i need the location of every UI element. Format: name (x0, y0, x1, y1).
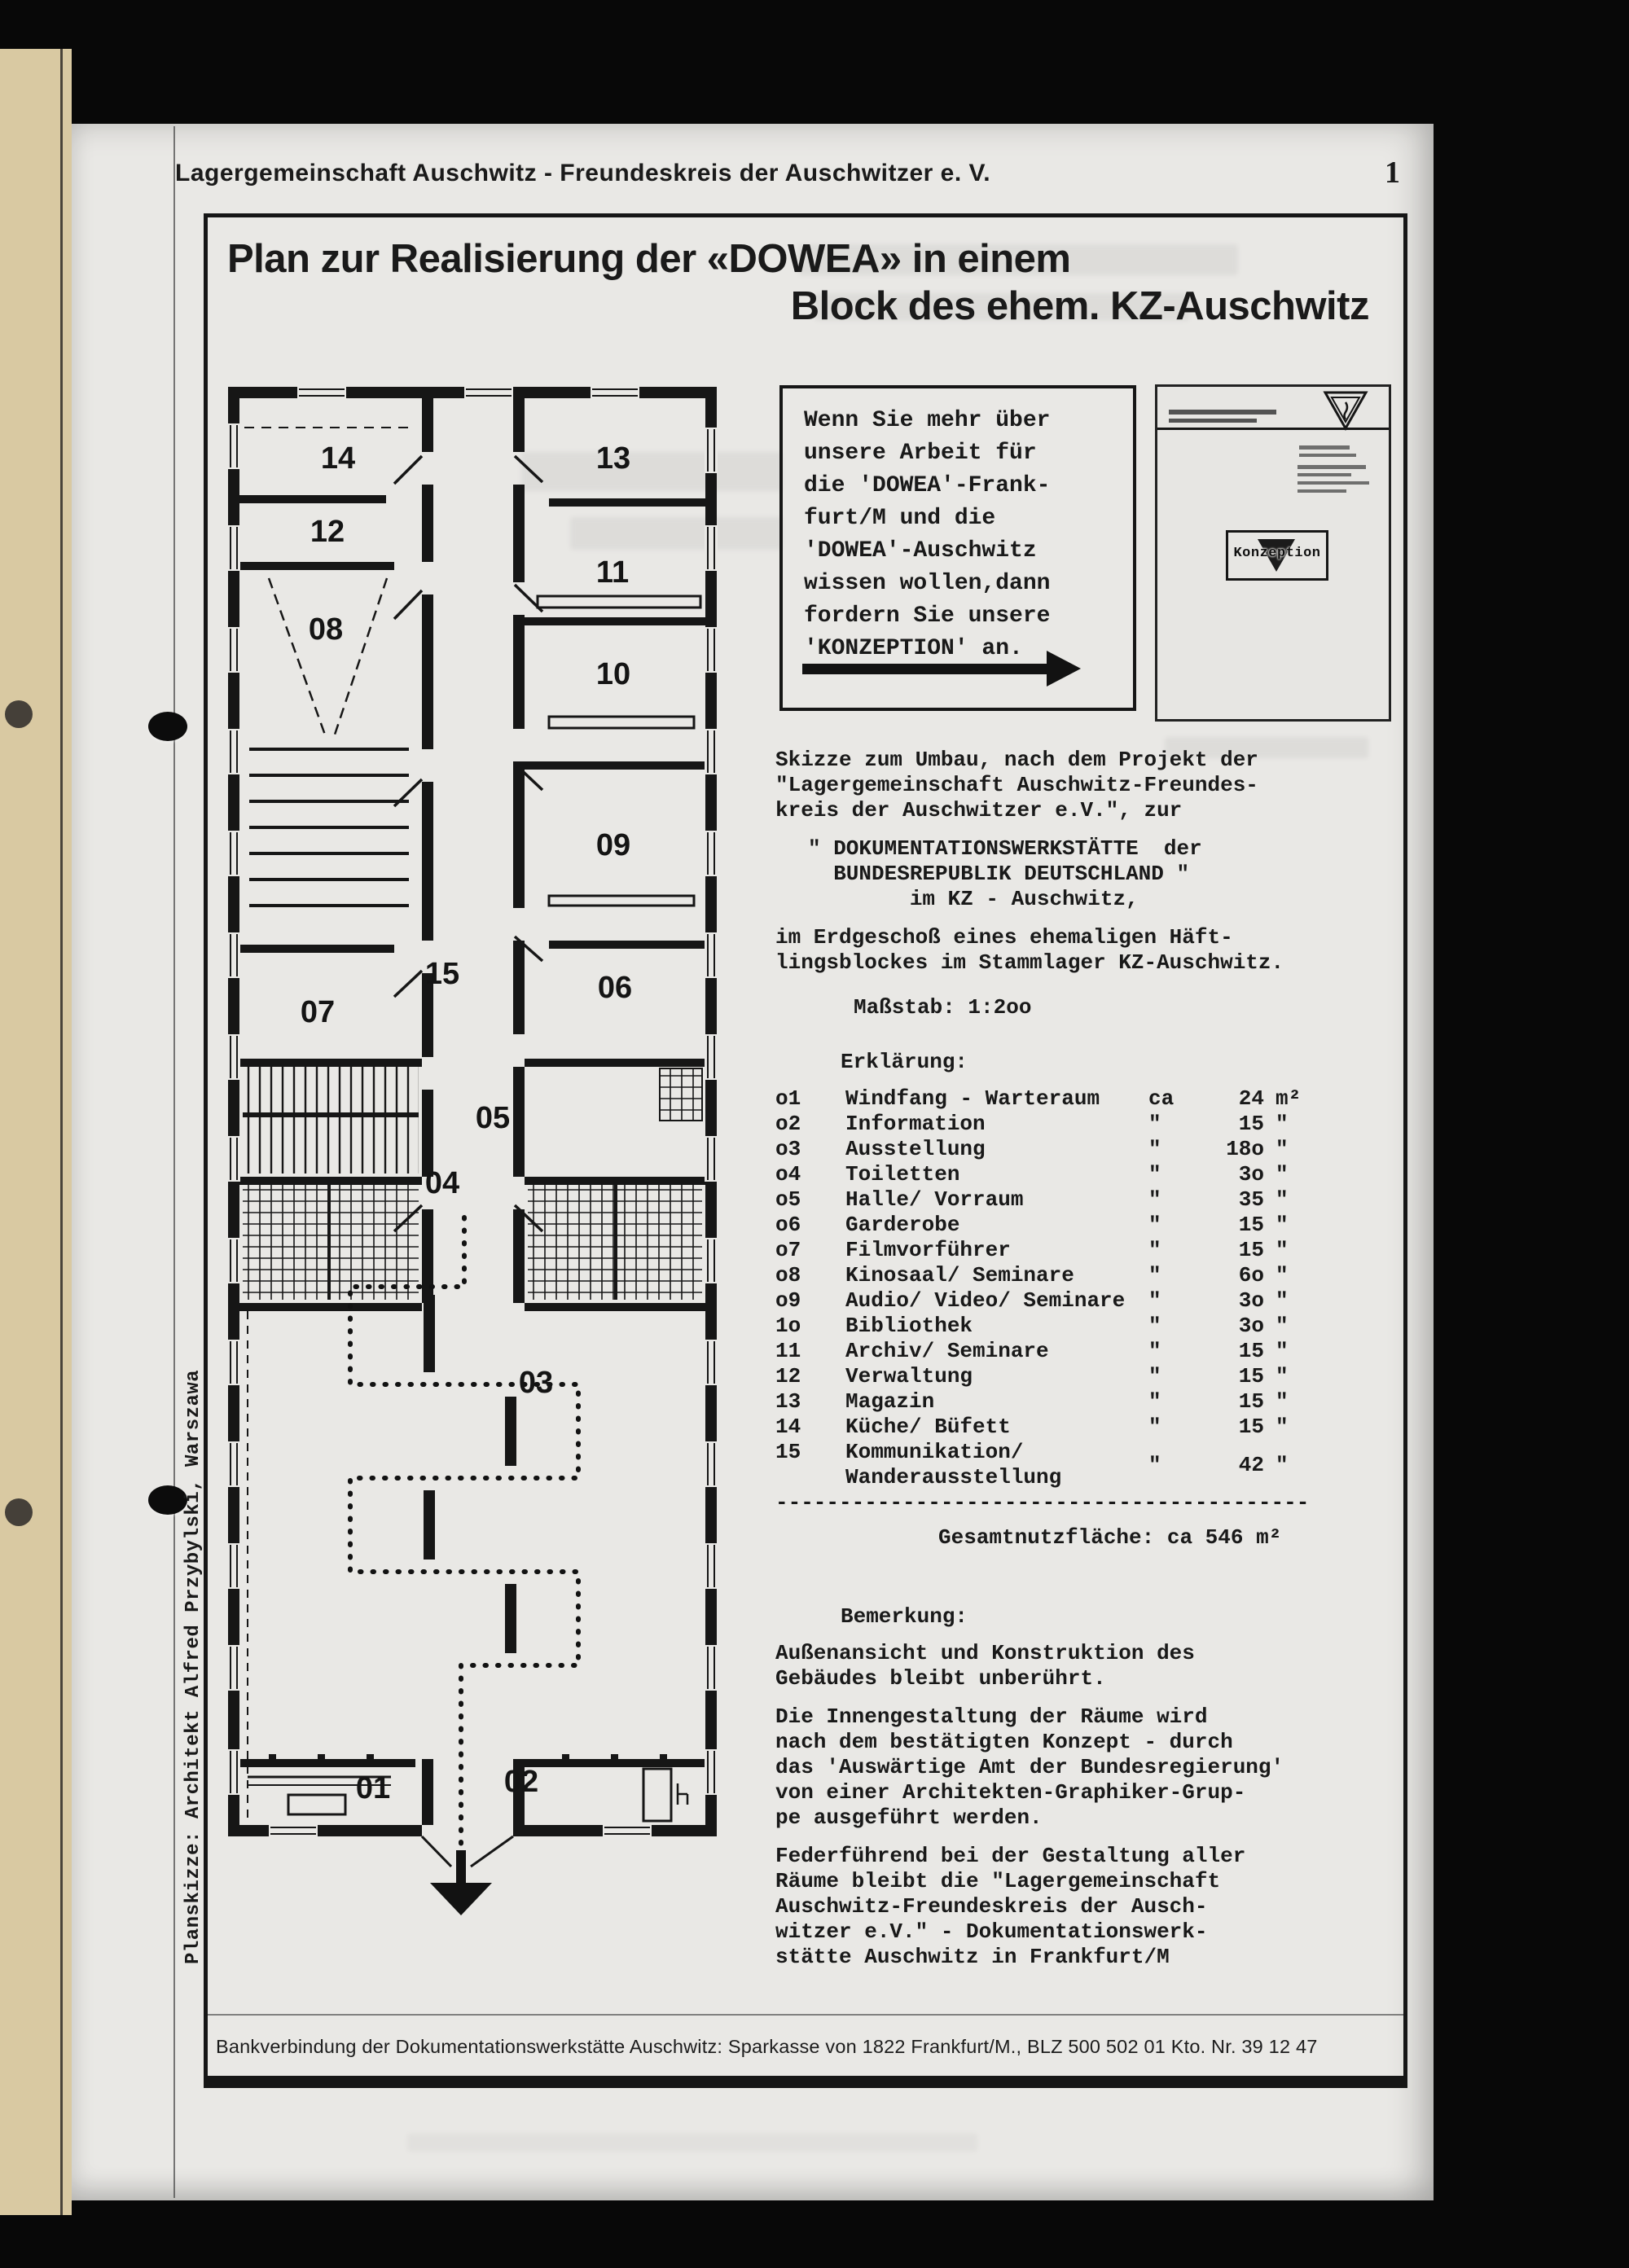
area-value: 15 (1194, 1364, 1264, 1389)
room-name: Audio/ Video/ Seminare (845, 1288, 1148, 1314)
punch-hole-top (148, 712, 187, 741)
konzeption-brochure-cover: Konzeption (1155, 384, 1391, 722)
legend-row: 14Küche/ Büfett"15" (775, 1415, 1394, 1440)
legend-row: o3Ausstellung"18o" (775, 1137, 1394, 1162)
area-value: 15 (1194, 1112, 1264, 1137)
cover-address-line (1297, 473, 1351, 476)
area-unit: " (1264, 1339, 1305, 1364)
right-text-column: Skizze zum Umbau, nach dem Projekt der "… (775, 748, 1394, 1970)
total-area: Gesamtnutzfläche: ca 546 m² (938, 1525, 1394, 1551)
approx-mark: " (1148, 1288, 1194, 1314)
area-value: 3o (1194, 1288, 1264, 1314)
approx-mark: " (1148, 1339, 1194, 1364)
legend-row: o2Information"15" (775, 1112, 1394, 1137)
room-label: 01 (356, 1771, 390, 1805)
bleed-through (407, 2134, 977, 2152)
room-label: 12 (310, 515, 345, 549)
room-name: Information (845, 1112, 1148, 1137)
area-value: 18o (1194, 1137, 1264, 1162)
area-value: 24 (1194, 1086, 1264, 1112)
area-unit: " (1264, 1415, 1305, 1440)
dashed-separator: ----------------------------------------… (775, 1490, 1394, 1516)
area-value: 35 (1194, 1187, 1264, 1213)
legend-row: 11Archiv/ Seminare"15" (775, 1339, 1394, 1364)
area-unit: " (1264, 1112, 1305, 1137)
konzeption-promo-box: Wenn Sie mehr über unsere Arbeit für die… (779, 385, 1136, 711)
approx-mark: " (1148, 1415, 1194, 1440)
legend-row: 15Kommunikation/ Wanderausstellung"42" (775, 1440, 1394, 1490)
cover-address-line (1299, 445, 1350, 450)
room-no: 11 (775, 1339, 845, 1364)
approx-mark: " (1148, 1364, 1194, 1389)
legend-heading: Erklärung: (841, 1050, 1394, 1075)
area-unit: " (1264, 1364, 1305, 1389)
area-unit: " (1264, 1137, 1305, 1162)
sketch-paragraph-1: Skizze zum Umbau, nach dem Projekt der "… (775, 748, 1394, 823)
room-label: 14 (321, 441, 355, 476)
room-no: o3 (775, 1137, 845, 1162)
approx-mark: " (1148, 1162, 1194, 1187)
area-unit: " (1264, 1314, 1305, 1339)
room-name: Archiv/ Seminare (845, 1339, 1148, 1364)
room-label: 05 (476, 1101, 510, 1135)
bank-footer: Bankverbindung der Dokumentationswerkstä… (216, 2036, 1395, 2058)
remark-paragraph-3: Federführend bei der Gestaltung aller Rä… (775, 1844, 1394, 1970)
room-label: 07 (301, 995, 335, 1029)
area-unit: " (1264, 1187, 1305, 1213)
room-label: 04 (425, 1166, 459, 1200)
cover-address-line (1297, 481, 1369, 485)
sketch-paragraph-2: im Erdgeschoß eines ehemaligen Häft- lin… (775, 925, 1394, 976)
sketch-title-block: " DOKUMENTATIONSWERKSTÄTTE der BUNDESREP… (808, 836, 1394, 912)
remark-paragraph-2: Die Innengestaltung der Räume wird nach … (775, 1704, 1394, 1831)
area-value: 15 (1194, 1339, 1264, 1364)
arrow-head (1047, 651, 1081, 687)
title-line-1: Plan zur Realisierung der «DOWEA» in ein… (224, 235, 1381, 283)
legend-row: 13Magazin"15" (775, 1389, 1394, 1415)
room-name: Filmvorführer (845, 1238, 1148, 1263)
room-name: Magazin (845, 1389, 1148, 1415)
approx-mark: " (1148, 1238, 1194, 1263)
room-no: o7 (775, 1238, 845, 1263)
previous-page-punch-hole-bottom (5, 1498, 33, 1526)
binder-margin-line (173, 126, 175, 2198)
area-value: 6o (1194, 1263, 1264, 1288)
area-unit: " (1264, 1213, 1305, 1238)
remark-paragraph-1: Außenansicht und Konstruktion des Gebäud… (775, 1641, 1394, 1691)
approx-mark: " (1148, 1112, 1194, 1137)
room-label: 15 (425, 957, 459, 991)
legend-row: o4Toiletten"3o" (775, 1162, 1394, 1187)
room-label: 02 (504, 1765, 538, 1799)
room-no: o2 (775, 1112, 845, 1137)
area-unit: " (1264, 1389, 1305, 1415)
konzeption-badge: Konzeption (1226, 530, 1328, 581)
punch-hole-bottom (148, 1485, 187, 1515)
approx-mark: " (1148, 1213, 1194, 1238)
room-name: Windfang - Warteraum (845, 1086, 1148, 1112)
previous-page-punch-hole-top (5, 700, 33, 728)
area-value: 3o (1194, 1314, 1264, 1339)
area-value: 15 (1194, 1415, 1264, 1440)
area-unit: " (1264, 1162, 1305, 1187)
page-number: 1 (1385, 155, 1400, 191)
remark-heading: Bemerkung: (841, 1604, 1394, 1630)
room-name: Verwaltung (845, 1364, 1148, 1389)
approx-mark: " (1148, 1263, 1194, 1288)
room-name: Garderobe (845, 1213, 1148, 1238)
cover-header-textline (1169, 419, 1257, 423)
legend-row: o7Filmvorführer"15" (775, 1238, 1394, 1263)
room-label: 11 (596, 555, 629, 590)
triangle-logo-icon (1322, 389, 1369, 432)
cover-rule (1157, 428, 1389, 430)
furniture (248, 1769, 687, 1821)
architect-credit: Planskizze: Architekt Alfred Przybylski,… (182, 1321, 204, 1964)
legend-table: o1Windfang - Warteraumca24m² o2Informati… (775, 1086, 1394, 1490)
area-value: 15 (1194, 1389, 1264, 1415)
cover-address-line (1299, 454, 1356, 457)
approx-mark: " (1148, 1314, 1194, 1339)
room-no: 12 (775, 1364, 845, 1389)
room-no: 14 (775, 1415, 845, 1440)
approx-mark: " (1148, 1137, 1194, 1162)
area-value: 3o (1194, 1162, 1264, 1187)
previous-page-edge-line (60, 49, 63, 2215)
room-name: Kinosaal/ Seminare (845, 1263, 1148, 1288)
cover-address-line (1297, 489, 1346, 493)
room-name: Bibliothek (845, 1314, 1148, 1339)
previous-page-edge (0, 49, 72, 2215)
legend-row: o9Audio/ Video/ Seminare"3o" (775, 1288, 1394, 1314)
right-arrow-icon (802, 651, 1081, 687)
room-name: Kommunikation/ Wanderausstellung (845, 1440, 1148, 1490)
area-value: 15 (1194, 1213, 1264, 1238)
approx-mark: " (1148, 1453, 1194, 1478)
room-label: 13 (596, 441, 630, 476)
legend-row: o6Garderobe"15" (775, 1213, 1394, 1238)
room-no: 1o (775, 1314, 845, 1339)
room-no: o8 (775, 1263, 845, 1288)
area-unit: " (1264, 1288, 1305, 1314)
arrow-shaft (802, 664, 1047, 674)
area-unit: " (1264, 1238, 1305, 1263)
room-name: Halle/ Vorraum (845, 1187, 1148, 1213)
area-unit: m² (1264, 1086, 1305, 1112)
room-label: 03 (519, 1366, 553, 1400)
approx-mark: " (1148, 1187, 1194, 1213)
approx-mark: ca (1148, 1086, 1194, 1112)
promo-text: Wenn Sie mehr über unsere Arbeit für die… (804, 405, 1133, 665)
title-line-2: Block des ehem. KZ-Auschwitz (224, 283, 1381, 330)
cover-address-line (1297, 465, 1366, 469)
room-label: 09 (596, 828, 630, 862)
room-no: o1 (775, 1086, 845, 1112)
legend-row: o8Kinosaal/ Seminare"6o" (775, 1263, 1394, 1288)
page-header: Lagergemeinschaft Auschwitz - Freundeskr… (175, 160, 990, 187)
floor-plan: 14 13 12 11 08 10 09 07 15 06 05 04 03 0… (220, 375, 725, 1922)
room-no: o4 (775, 1162, 845, 1187)
document-title: Plan zur Realisierung der «DOWEA» in ein… (224, 235, 1381, 330)
room-label: 10 (596, 657, 630, 691)
legend-row: 1oBibliothek"3o" (775, 1314, 1394, 1339)
area-unit: " (1264, 1453, 1305, 1478)
room-no: 13 (775, 1389, 845, 1415)
room-name: Ausstellung (845, 1137, 1148, 1162)
room-no: o6 (775, 1213, 845, 1238)
room-no: o5 (775, 1187, 845, 1213)
area-value: 42 (1194, 1453, 1264, 1478)
footer-rule (208, 2014, 1403, 2016)
cover-header-textline (1169, 410, 1276, 415)
legend-row: o5Halle/ Vorraum"35" (775, 1187, 1394, 1213)
approx-mark: " (1148, 1389, 1194, 1415)
scale-note: Maßstab: 1:2oo (854, 995, 1394, 1020)
room-label: 08 (309, 612, 343, 647)
legend-row: o1Windfang - Warteraumca24m² (775, 1086, 1394, 1112)
scanned-book-photo: Lagergemeinschaft Auschwitz - Freundeskr… (0, 0, 1629, 2268)
room-name: Toiletten (845, 1162, 1148, 1187)
staircase (243, 1063, 419, 1173)
area-value: 15 (1194, 1238, 1264, 1263)
legend-row: 12Verwaltung"15" (775, 1364, 1394, 1389)
area-unit: " (1264, 1263, 1305, 1288)
room-label: 06 (598, 971, 632, 1005)
room-no: o9 (775, 1288, 845, 1314)
badge-label: Konzeption (1228, 546, 1326, 561)
room-no: 15 (775, 1440, 845, 1465)
room-name: Küche/ Büfett (845, 1415, 1148, 1440)
entrance-arrow (422, 1836, 513, 1915)
